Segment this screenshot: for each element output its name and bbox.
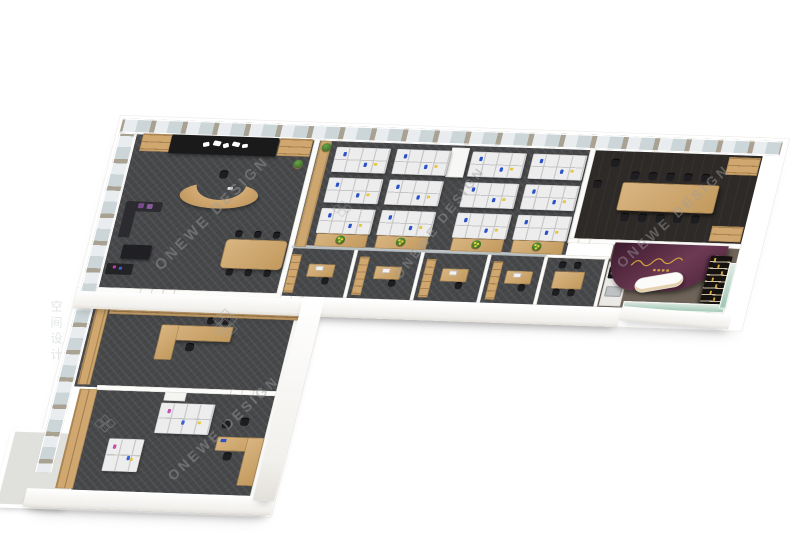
workstation-cluster	[391, 149, 451, 176]
door-conference	[577, 238, 597, 244]
coffee-table	[120, 244, 152, 259]
workstation-cluster	[384, 179, 444, 206]
workstation-cluster	[520, 184, 580, 211]
lattice-diamond-icon	[210, 308, 240, 338]
office-monitor	[382, 268, 391, 273]
floor-plan-3d	[45, 132, 764, 514]
reception-cabinet-right	[276, 138, 313, 157]
conference-corner-cabinet	[709, 226, 744, 242]
watermark-text-cn: 空间设计	[48, 300, 65, 364]
office-monitor	[449, 271, 458, 276]
pantry-table	[551, 271, 586, 290]
office-monitor	[513, 273, 522, 278]
lattice-diamond-icon	[92, 414, 118, 440]
logo-feature-wall	[168, 134, 280, 156]
workstation-cluster	[527, 154, 587, 181]
workroom-cluster	[154, 403, 216, 435]
printer-table	[163, 392, 187, 401]
office-monitor	[315, 266, 324, 271]
workstation-cluster	[512, 215, 572, 242]
workstation-cluster	[331, 147, 391, 174]
credenza-items	[112, 266, 116, 269]
reception-cabinet-left	[139, 133, 172, 151]
lattice-diamond-icon	[330, 200, 354, 224]
floorplan-render: ONEWE DESIGN ONEWE DESIGN ONEWE DESIGN O…	[0, 0, 800, 540]
media-credenza	[105, 263, 134, 275]
company-logo-icon	[168, 134, 280, 156]
workstation-cluster	[452, 213, 512, 240]
meeting-table	[219, 239, 288, 271]
